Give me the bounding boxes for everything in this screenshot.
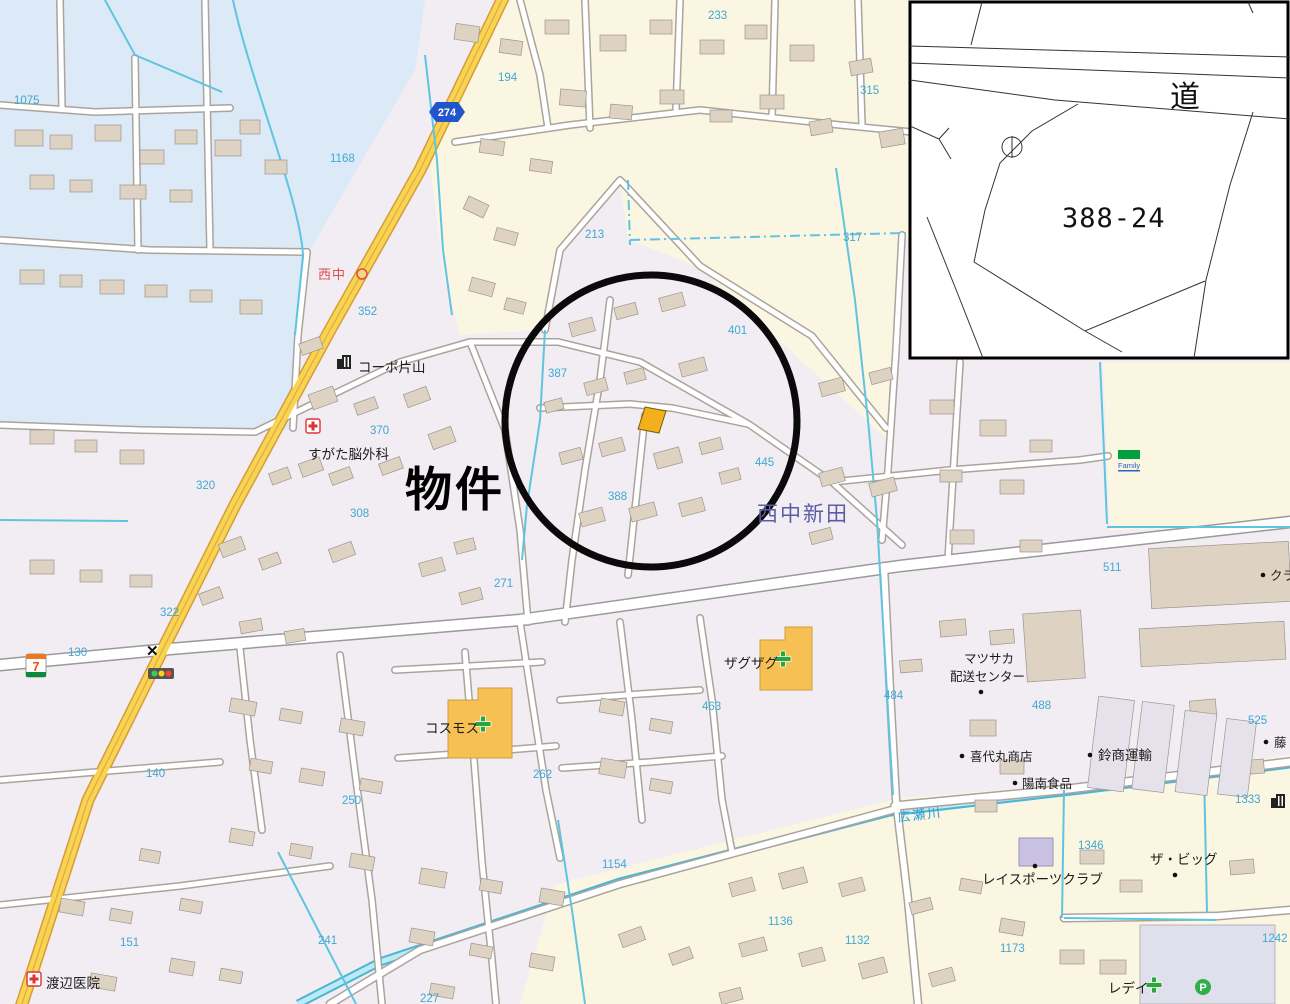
building-footprint [30,560,54,574]
poi-dot [1088,753,1093,758]
parcel-number-320: 320 [196,480,215,492]
parcel-number-1333: 1333 [1235,794,1261,806]
parcel-number-213: 213 [585,229,604,241]
road-segment [0,866,330,905]
building-footprint [339,718,365,736]
building-footprint [614,302,638,319]
familymart-label: Family [1118,461,1140,470]
parcel-number-1154: 1154 [602,859,627,871]
building-footprint [1030,440,1052,452]
building-footprint [790,45,814,61]
building-footprint [240,120,260,134]
building-footprint [80,570,102,582]
building-footprint [745,25,767,39]
building-footprint [649,718,673,734]
building-footprint [660,90,684,104]
building-footprint [1100,960,1126,974]
building-footprint [760,95,784,109]
poi-dot [1013,781,1018,786]
building-footprint [980,420,1006,436]
building-footprint [95,125,121,141]
inset-road-label: 道 [1170,81,1200,114]
cadastral-inset: 道 388-24 [910,2,1290,358]
building-footprint [15,130,43,146]
building-footprint [679,497,706,517]
inset-parcel-number: 388-24 [1062,203,1166,234]
building-footprint [930,400,954,414]
poi-fuji-partial: 藤 [1274,736,1287,750]
crossing-x-mark: ✕ [146,643,159,660]
poi-matsusaka-line2: 配送センター [950,669,1025,684]
building-footprint [459,587,483,604]
parcel-number-388: 388 [608,491,627,503]
parcel-number-484: 484 [884,690,904,702]
poi-dot [1264,740,1269,745]
building-footprint [359,778,383,794]
building-footprint [265,160,287,174]
poi-dot [1173,873,1178,878]
building-footprint [599,437,626,457]
building-footprint [1020,540,1042,552]
building-footprint [59,898,85,916]
building-footprint [50,135,72,149]
bus-stop-label: 西中 [318,267,346,282]
building-footprint [289,843,313,859]
building-footprint [30,430,54,444]
hospital-icon-sugata [306,419,320,433]
parcel-number-308: 308 [350,508,369,520]
route-shield-number: 274 [438,107,457,119]
building-footprint [454,538,476,555]
poi-dot [960,754,965,759]
building-footprint [545,20,569,34]
poi-the-big: ザ・ビッグ [1150,852,1218,867]
seven-eleven-icon: 7 [26,654,46,677]
parcel-number-445: 445 [755,457,774,469]
road-segment [340,655,382,1004]
building-footprint [1229,859,1254,875]
building-footprint [140,150,164,164]
poi-sugata-neurosurgery: すがた脳外科 [308,447,389,462]
building-footprint [650,20,672,34]
parcel-number-271: 271 [494,578,513,590]
parcel-number-463: 463 [702,701,721,713]
building-footprint [649,778,673,794]
stream [0,520,128,521]
parcel-number-227: 227 [420,993,439,1004]
building-footprint [199,587,224,606]
hospital-icon-watanabe [27,972,41,986]
building-footprint [659,292,686,312]
building-footprint [269,467,292,485]
building-footprint [120,185,146,199]
building-footprint [599,698,625,716]
property-label: 物件 [405,463,505,516]
building-footprint [428,426,456,449]
parking-glyph: P [1199,982,1206,994]
parcel-number-1173: 1173 [1000,943,1025,955]
building-footprint [219,968,243,984]
building-footprint [970,720,996,736]
building-footprint [299,768,325,786]
parcel-number-250: 250 [342,795,361,807]
parcel-number-151: 151 [120,937,139,949]
poi-yonan-foods: 陽南食品 [1022,776,1072,791]
parcel-number-387: 387 [548,368,567,380]
building-footprint [240,300,262,314]
road-segment [700,618,732,852]
poi-matsusaka-line1: マツサカ [964,652,1014,666]
building-footprint [109,908,133,924]
traffic-light-icon [148,668,174,679]
building-footprint [130,575,152,587]
building-footprint [70,180,92,192]
parking-icon: P [1195,979,1211,995]
bus-stop-icon [357,269,367,279]
building-footprint [975,800,997,812]
building-footprint [175,130,197,144]
building-footprint [354,397,379,416]
parcel-number-140: 140 [146,768,165,780]
building-footprint [139,848,161,863]
parcel-number-488: 488 [1032,700,1051,712]
parcel-number-401: 401 [728,325,747,337]
parcel-number-241: 241 [318,935,337,947]
building-footprint [624,368,646,385]
building-footprint [900,659,923,673]
poi-dot [979,690,984,695]
building-footprint [169,958,195,976]
building-footprint [989,629,1014,645]
building-footprint [719,468,741,485]
poi-watanabe-clinic: 渡辺医院 [46,976,100,991]
road-segment [135,58,138,250]
building-footprint [600,35,626,51]
road-segment [240,648,262,830]
poi-suzusho-transport: 鈴商運輸 [1098,748,1152,763]
district-label-nishinaka-shinden: 西中新田 [757,503,849,526]
building-footprint [308,386,338,410]
building-footprint [700,40,724,54]
parcel-number-1132: 1132 [845,935,870,947]
building-footprint [529,159,552,174]
building-footprint [190,290,212,302]
zone-cream-east [1103,362,1290,530]
poi-redei: レデイ [1108,980,1149,996]
building-footprint [1000,480,1024,494]
rei-sports-building [1019,838,1053,866]
building-footprint [499,39,523,56]
road-segment [620,622,642,820]
building-footprint [419,868,447,888]
parcel-number-262: 262 [533,769,552,781]
building-footprint [454,23,480,42]
building-footprint [479,138,505,155]
stream [522,330,545,560]
building-footprint [30,175,54,189]
building-footprint [1080,850,1104,864]
building-footprint [328,541,355,562]
building-footprint [609,104,632,120]
building-footprint [239,618,263,634]
poi-kura-partial: クラ [1270,569,1290,583]
poi-corpo-katayama: コーポ片山 [358,360,426,375]
building-footprint [179,898,203,914]
building-footprint [259,552,282,570]
apartment-icon [337,355,351,369]
building-footprint [653,447,682,469]
road-segment [628,415,645,575]
parcel-number-1136: 1136 [768,916,793,928]
building-footprint [75,440,97,452]
road-segment [520,622,560,858]
building-footprint [939,619,966,637]
poi-kiyomaru-shoten: 喜代丸商店 [970,749,1033,764]
familymart-icon: Family [1118,450,1140,472]
building-footprint [20,270,44,284]
road-segment [60,0,62,108]
building-footprint [940,470,962,482]
parcel-number-315: 315 [860,85,879,97]
property-parcel [638,407,666,433]
building-footprint [559,447,583,464]
parcel-number-511: 511 [1103,562,1121,574]
parcel-number-525: 525 [1248,715,1267,727]
building-footprint [349,853,375,871]
poi-dot [1261,573,1266,578]
building-footprint [60,275,82,287]
parcel-number-352: 352 [358,306,377,318]
parcel-number-130: 130 [68,647,87,659]
building-footprint [1120,880,1142,892]
building-footprint [145,285,167,297]
building-footprint [215,140,241,156]
parcel-number-317: 317 [843,232,862,244]
parcel-number-194: 194 [498,72,518,84]
poi-dot [1033,864,1038,869]
poi-zagzag: ザグザグ [724,656,778,671]
building-footprint [409,928,435,946]
map-canvas: 1075 1168 194 233 315 213 317 352 370 38… [0,0,1290,1004]
building-footprint [419,557,446,577]
building-footprint [1139,621,1286,667]
route-shield-274: 274 [429,102,465,122]
stream [278,852,356,1004]
building-footprint [100,280,124,294]
building-footprint [710,110,732,122]
building-footprint [950,530,974,544]
building-footprint [1060,950,1084,964]
building-footprint [329,467,354,486]
building-footprint [229,698,257,716]
parcel-number-1242: 1242 [1262,933,1288,945]
seven-eleven-glyph: 7 [32,659,39,674]
building-footprint [279,708,303,724]
poi-cosmos: コスモス [425,721,479,736]
map-screenshot: 1075 1168 194 233 315 213 317 352 370 38… [0,0,1290,1004]
building-footprint [120,450,144,464]
parcel-number-322: 322 [160,607,179,619]
building-footprint [569,317,596,337]
building-footprint [1149,541,1290,608]
building-footprint [809,527,833,544]
building-footprint [559,89,586,107]
parcel-number-233: 233 [708,10,727,22]
building-footprint [229,828,255,846]
building-footprint [699,437,723,454]
parcel-number-1168: 1168 [330,153,355,165]
building-footprint [679,357,708,377]
building-footprint [170,190,192,202]
poi-rei-sports-club: レイスポーツクラブ [982,871,1103,887]
building-footprint [584,377,609,395]
parcel-number-1075: 1075 [14,95,40,107]
parcel-number-370: 370 [370,425,389,437]
parcel-number-1346: 1346 [1078,840,1104,852]
building-footprint [403,386,430,407]
building-footprint [1023,610,1086,682]
